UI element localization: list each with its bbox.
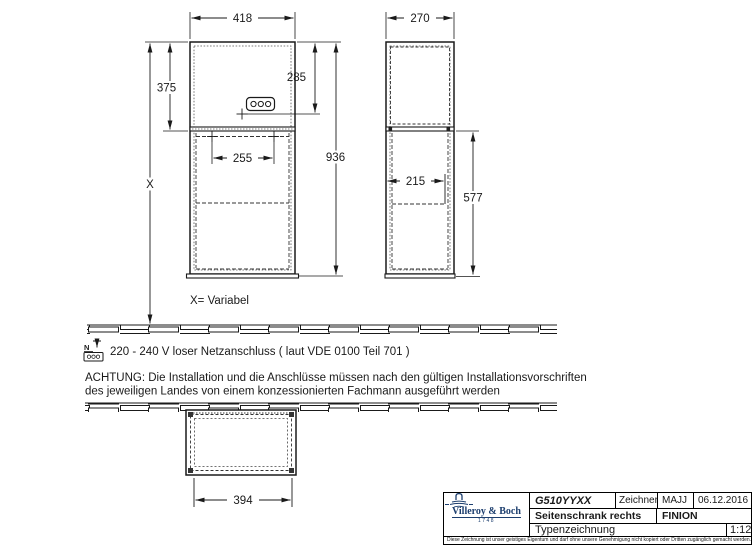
dimension-front-width: 418 (190, 12, 295, 40)
dim-label-215: 215 (406, 176, 425, 188)
dimension-side-depth: 270 (386, 12, 454, 40)
floor-hatch-lower (85, 403, 557, 412)
fountain-icon (444, 493, 474, 510)
corner-panel-marker (188, 412, 193, 417)
svg-text:N: N (84, 343, 89, 352)
hinge-marker (447, 127, 451, 131)
series-name: FINION (656, 509, 751, 523)
brand-year: 1748 (478, 518, 495, 524)
hinge-marker (389, 127, 393, 131)
side-base-plate (385, 274, 455, 278)
corner-panel-marker (289, 412, 294, 417)
drawing-type: Typenzeichnung (530, 524, 726, 536)
article-number: G510YYXX (530, 493, 615, 508)
copyright-note: Diese Zeichnung ist unser geistiges Eige… (444, 536, 751, 544)
dim-label-285: 285 (287, 72, 306, 84)
title-block: Villeroy & Boch 1748 G510YYXX Zeichner M… (443, 492, 752, 545)
floor-hatch-upper (87, 325, 557, 334)
power-connection-icon: N (84, 341, 103, 361)
drawing-date: 06.12.2016 (693, 493, 751, 508)
dimension-front-upper-height: 375 (154, 44, 188, 132)
socket-icon (247, 98, 275, 111)
dimension-side-lower-height: 577 (456, 131, 487, 277)
dim-label-375: 375 (157, 83, 176, 95)
power-note: 220 - 240 V loser Netzanschluss ( laut V… (110, 346, 410, 358)
bottom-view (186, 410, 296, 475)
technical-drawing-page: 418 270 375 X 285 936 (0, 0, 756, 546)
dim-label-270: 270 (410, 13, 429, 25)
product-name: Seitenschrank rechts (530, 509, 656, 523)
dim-label-x: X (146, 179, 154, 191)
side-view (385, 42, 455, 278)
dim-label-255: 255 (233, 153, 252, 165)
warning-note-line1: ACHTUNG: Die Installation und die Anschl… (85, 372, 587, 384)
drafter-label: Zeichner (615, 493, 657, 508)
drawing-canvas: 418 270 375 X 285 936 (0, 0, 756, 546)
dimension-front-total-height: 936 (299, 44, 349, 277)
warning-note-line2: des jeweiligen Landes von einem konzessi… (85, 386, 500, 398)
corner-panel-marker (289, 468, 294, 473)
dim-label-418: 418 (233, 13, 252, 25)
brand-logo: Villeroy & Boch 1748 (444, 493, 530, 536)
drawing-scale: 1:12 (726, 524, 751, 536)
dim-label-394: 394 (233, 495, 253, 507)
dim-label-936: 936 (326, 152, 345, 164)
variable-note: X= Variabel (190, 295, 249, 307)
front-base-plate (187, 274, 299, 278)
dimension-bottom-width: 394 (194, 478, 292, 507)
dim-label-577: 577 (463, 193, 482, 205)
corner-panel-marker (188, 468, 193, 473)
drafter-initials: MAJJ (657, 493, 693, 508)
